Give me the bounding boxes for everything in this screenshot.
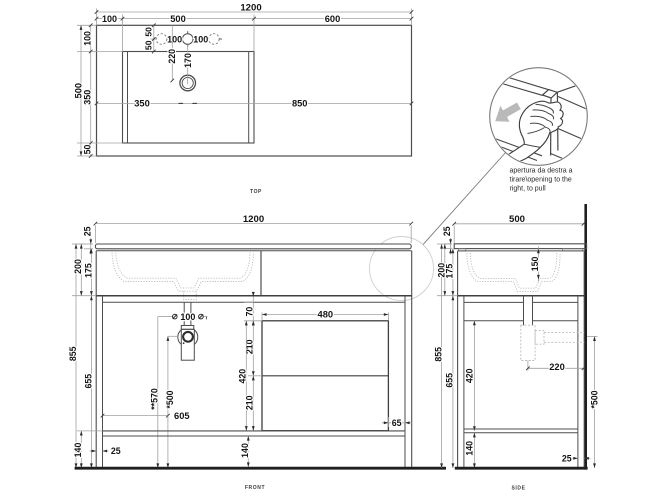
- svg-text:100: 100: [167, 34, 182, 44]
- svg-text:50: 50: [144, 27, 154, 37]
- svg-text:25: 25: [111, 446, 121, 456]
- svg-text:140: 140: [464, 441, 474, 456]
- svg-text:500: 500: [170, 14, 186, 24]
- svg-text:50: 50: [83, 145, 93, 155]
- svg-text:1200: 1200: [240, 2, 261, 13]
- svg-text:FRONT: FRONT: [245, 485, 265, 491]
- svg-text:150: 150: [530, 256, 540, 271]
- svg-text:SIDE: SIDE: [511, 485, 525, 491]
- svg-text:350: 350: [134, 99, 150, 109]
- svg-text:170: 170: [183, 53, 193, 68]
- svg-text:420: 420: [464, 368, 474, 383]
- svg-text:420: 420: [237, 369, 247, 384]
- svg-text:210: 210: [244, 395, 254, 410]
- svg-text:tirare\opening to the: tirare\opening to the: [510, 177, 572, 184]
- svg-text:220: 220: [549, 362, 565, 372]
- svg-text:855: 855: [433, 347, 443, 362]
- svg-text:200: 200: [73, 259, 83, 274]
- svg-text:1200: 1200: [243, 214, 264, 225]
- svg-text:65: 65: [392, 418, 402, 428]
- svg-text:100: 100: [193, 34, 208, 44]
- svg-text:605: 605: [174, 411, 190, 421]
- svg-text:655: 655: [445, 373, 455, 388]
- svg-text:855: 855: [68, 346, 78, 361]
- svg-text:apertura da destra a: apertura da destra a: [510, 168, 573, 175]
- svg-text:50: 50: [144, 40, 154, 50]
- svg-text:140: 140: [240, 443, 250, 458]
- svg-text:**570: **570: [150, 388, 160, 410]
- svg-text:100: 100: [180, 312, 195, 322]
- svg-text:100: 100: [102, 14, 117, 24]
- svg-text:850: 850: [292, 99, 308, 109]
- svg-text:25: 25: [562, 453, 572, 463]
- svg-text:500: 500: [509, 214, 525, 225]
- svg-text:220: 220: [167, 49, 177, 64]
- svg-text:TOP: TOP: [250, 189, 262, 195]
- svg-text:25: 25: [82, 226, 92, 236]
- svg-text:70: 70: [244, 307, 254, 317]
- svg-text:140: 140: [73, 443, 83, 458]
- svg-text:350: 350: [83, 90, 93, 105]
- svg-text:right, to pull: right, to pull: [510, 185, 547, 192]
- svg-text:*500: *500: [165, 390, 175, 408]
- svg-text:100: 100: [83, 31, 93, 46]
- svg-text:*500: *500: [590, 390, 600, 408]
- svg-text:175: 175: [83, 263, 93, 278]
- svg-text:175: 175: [445, 264, 455, 279]
- svg-text:25: 25: [442, 226, 452, 236]
- svg-text:480: 480: [318, 309, 334, 319]
- svg-text:655: 655: [83, 374, 93, 389]
- svg-text:600: 600: [325, 14, 341, 24]
